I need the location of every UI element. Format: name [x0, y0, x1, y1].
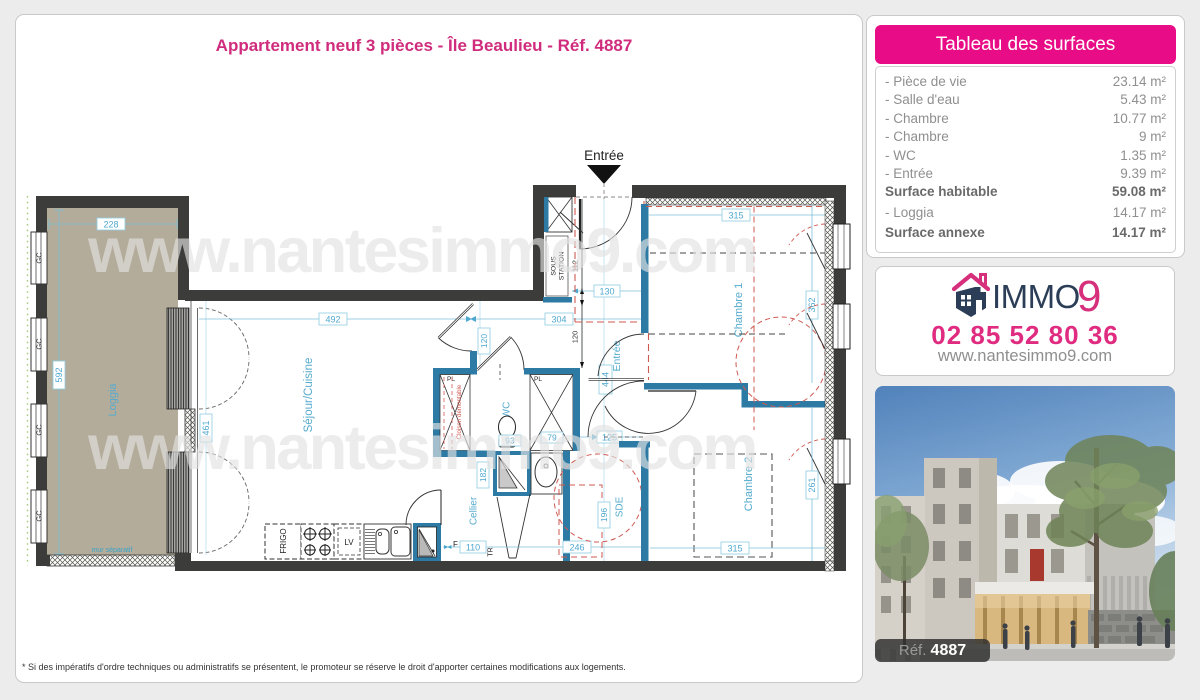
svg-text:GC: GC [35, 252, 44, 264]
svg-text:FRIGO: FRIGO [279, 528, 288, 553]
svg-text:IMMO: IMMO [992, 278, 1080, 315]
svg-text:592: 592 [54, 367, 64, 382]
svg-text:SDE: SDE [615, 496, 626, 517]
svg-text:PL: PL [447, 376, 455, 383]
svg-text:130: 130 [599, 287, 614, 297]
svg-text:Loggia: Loggia [107, 383, 119, 417]
svg-text:www.nantesimmo9.com: www.nantesimmo9.com [87, 413, 756, 483]
svg-text:TR: TR [488, 547, 495, 556]
svg-text:Chambre 1: Chambre 1 [733, 283, 745, 337]
svg-text:9: 9 [1077, 272, 1101, 318]
svg-text:mur séparatif: mur séparatif [92, 547, 133, 554]
svg-text:246: 246 [569, 543, 584, 553]
svg-text:GC: GC [35, 338, 44, 350]
svg-text:LV: LV [344, 538, 354, 547]
svg-text:www.nantesimmo9.com: www.nantesimmo9.com [87, 216, 756, 286]
svg-text:304: 304 [551, 315, 566, 325]
svg-text:261: 261 [807, 477, 817, 492]
svg-text:196: 196 [599, 508, 609, 522]
svg-text:110: 110 [466, 543, 480, 553]
svg-text:Entrée: Entrée [584, 148, 624, 163]
svg-text:Entrée: Entrée [611, 340, 623, 371]
svg-text:120: 120 [479, 334, 489, 348]
svg-text:120: 120 [571, 331, 580, 344]
svg-text:F: F [453, 540, 458, 549]
svg-text:GC: GC [35, 510, 44, 522]
svg-text:492: 492 [325, 315, 340, 325]
svg-text:PL: PL [534, 376, 542, 383]
svg-text:315: 315 [727, 544, 742, 554]
svg-text:Cellier: Cellier [469, 496, 480, 525]
svg-text:GC: GC [35, 424, 44, 436]
